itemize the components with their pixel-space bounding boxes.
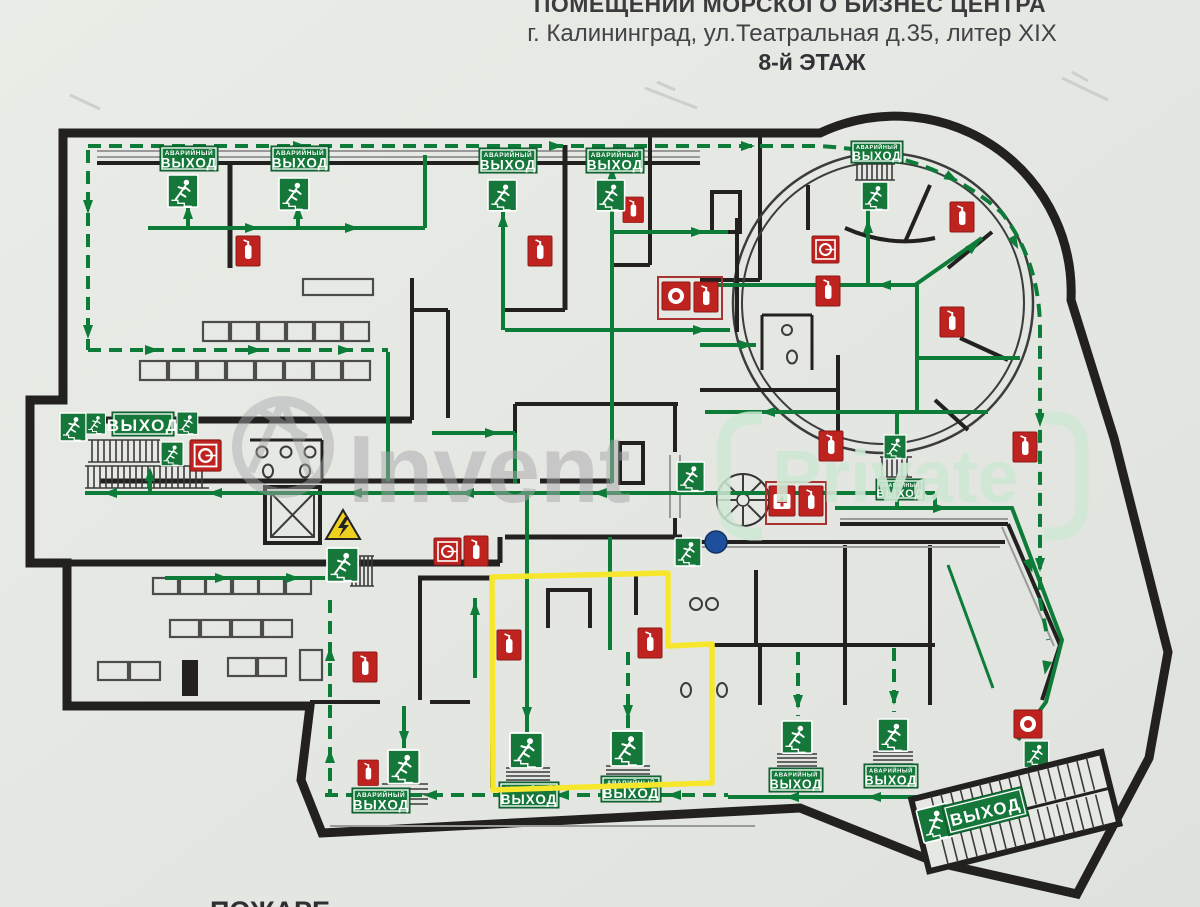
- running-man-icon: [177, 412, 198, 434]
- svg-text:ВЫХОД: ВЫХОД: [865, 774, 918, 788]
- running-man-icon: [596, 180, 625, 211]
- fire-extinguisher-icon: [623, 197, 643, 223]
- running-man-icon: [327, 548, 358, 582]
- running-man-icon: [878, 719, 908, 751]
- running-man-icon: [161, 442, 183, 466]
- running-man-icon: [168, 175, 198, 207]
- running-man-icon: [677, 462, 704, 491]
- fire-hose-reel-icon: [190, 440, 221, 471]
- svg-text:ВЫХОД: ВЫХОД: [107, 416, 179, 435]
- header-floor: 8-й ЭТАЖ: [758, 49, 866, 75]
- fire-extinguisher-icon: [353, 652, 377, 682]
- fire-extinguisher-icon: [464, 536, 488, 566]
- evacuation-plan-photo: ПОМЕЩЕНИЙ МОРСКОГО БИЗНЕС ЦЕНТРА г. Кали…: [0, 0, 1200, 907]
- running-man-icon: [510, 733, 543, 768]
- emergency-exit-sign: АВАРИЙНЫЙ ВЫХОД: [769, 768, 823, 792]
- running-man-icon: [388, 750, 419, 784]
- fire-hose-reel-icon: [434, 538, 461, 565]
- svg-text:АВАРИЙНЫЙ: АВАРИЙНЫЙ: [856, 143, 898, 151]
- header-title: ПОМЕЩЕНИЙ МОРСКОГО БИЗНЕС ЦЕНТРА: [534, 0, 1046, 17]
- running-man-icon: [279, 178, 309, 210]
- fire-extinguisher-icon: [236, 236, 260, 266]
- svg-text:ВЫХОД: ВЫХОД: [353, 798, 410, 813]
- running-man-icon: [862, 182, 888, 210]
- svg-text:ВЫХОД: ВЫХОД: [272, 156, 329, 171]
- running-man-icon: [782, 721, 812, 753]
- emergency-exit-sign: АВАРИЙНЫЙ ВЫХОД: [586, 148, 644, 173]
- svg-text:ВЫХОД: ВЫХОД: [770, 778, 823, 792]
- fire-extinguisher-icon: [940, 307, 964, 337]
- fire-hose-reel-icon: [812, 236, 839, 263]
- evacuation-plan-canvas: ПОМЕЩЕНИЙ МОРСКОГО БИЗНЕС ЦЕНТРА г. Кали…: [0, 0, 1200, 907]
- svg-text:ВЫХОД: ВЫХОД: [501, 792, 558, 807]
- emergency-exit-sign: АВАРИЙНЫЙ ВЫХОД: [851, 141, 903, 163]
- fire-extinguisher-icon: [638, 628, 662, 658]
- door-leaf: [182, 660, 198, 696]
- emergency-exit-sign: АВАРИЙНЫЙ ВЫХОД: [864, 764, 918, 788]
- emergency-exit-sign: АВАРИЙНЫЙ ВЫХОД: [160, 146, 218, 171]
- running-man-icon: [675, 538, 701, 566]
- legend-fragment: ПОЖАРЕ: [210, 896, 330, 907]
- watermark-word2: Private: [772, 435, 1019, 518]
- fire-extinguisher-icon: [528, 236, 552, 266]
- running-man-icon: [86, 413, 106, 434]
- emergency-exit-sign: АВАРИЙНЫЙ ВЫХОД: [352, 788, 410, 813]
- running-man-icon: [488, 180, 517, 211]
- running-man-icon: [611, 731, 644, 766]
- emergency-exit-sign: АВАРИЙНЫЙ ВЫХОД: [479, 148, 537, 173]
- svg-text:ВЫХОД: ВЫХОД: [853, 151, 902, 163]
- exit-sign: ВЫХОД: [107, 412, 179, 436]
- fire-extinguisher-icon: [497, 630, 521, 660]
- svg-text:ВЫХОД: ВЫХОД: [161, 156, 218, 171]
- hydrant-marker: [705, 531, 727, 553]
- running-man-icon: [60, 413, 86, 441]
- svg-text:ВЫХОД: ВЫХОД: [587, 158, 644, 173]
- watermark-word1: Invent: [348, 416, 631, 523]
- fire-extinguisher-icon: [358, 760, 378, 786]
- svg-text:ВЫХОД: ВЫХОД: [480, 158, 537, 173]
- emergency-exit-sign: АВАРИЙНЫЙ ВЫХОД: [271, 146, 329, 171]
- manual-call-point-icon: [662, 282, 690, 310]
- fire-extinguisher-icon: [816, 276, 840, 306]
- fire-extinguisher-icon: [694, 282, 718, 312]
- fire-extinguisher-icon: [950, 202, 974, 232]
- manual-call-point-icon: [1014, 710, 1042, 738]
- header-address: г. Калининград, ул.Театральная д.35, лит…: [527, 20, 1057, 47]
